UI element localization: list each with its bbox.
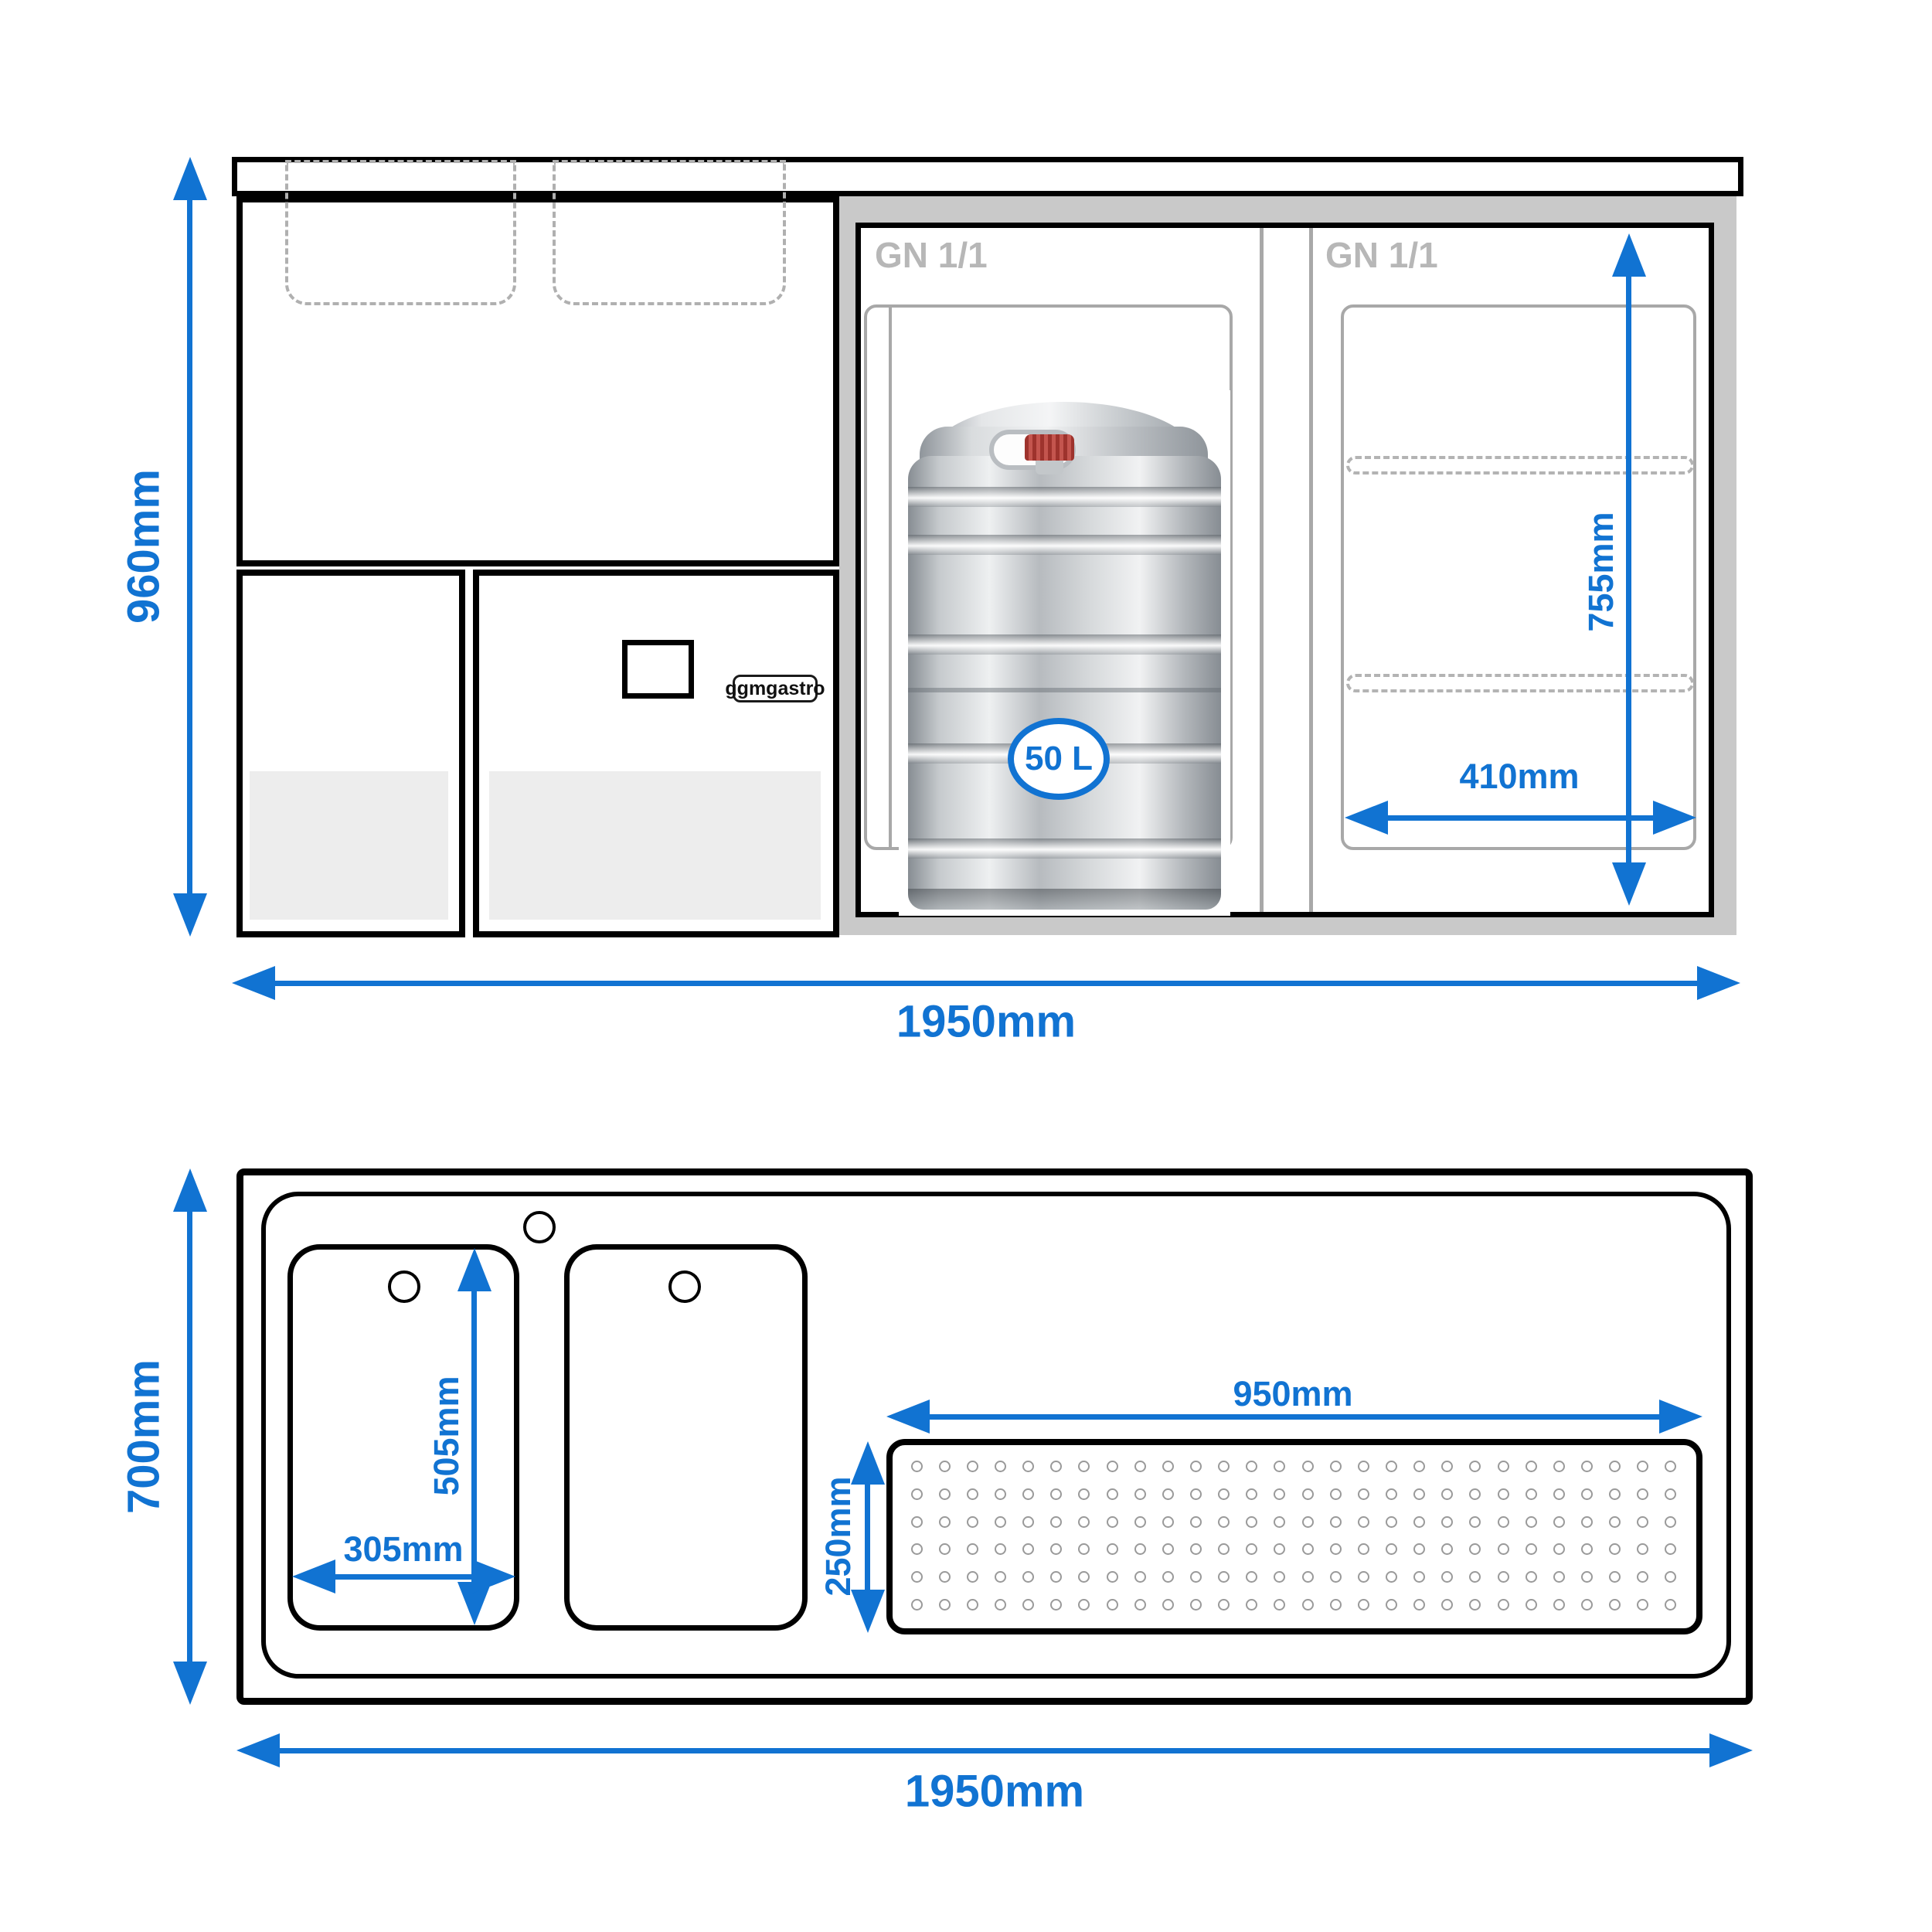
drainer-hole xyxy=(1665,1599,1676,1611)
drainer-hole xyxy=(1050,1461,1062,1472)
keg-rib xyxy=(908,487,1221,507)
drainer-hole xyxy=(939,1571,951,1583)
drainer-hole xyxy=(1665,1543,1676,1555)
drainer-hole xyxy=(1302,1516,1314,1528)
hidden-sink-outline-right xyxy=(553,160,786,305)
drainer-hole xyxy=(1386,1461,1397,1472)
drainer-hole xyxy=(995,1599,1006,1611)
drainer-hole xyxy=(1107,1516,1118,1528)
drainer-hole xyxy=(995,1461,1006,1472)
drainer-hole xyxy=(1581,1488,1593,1500)
drainer-hole xyxy=(1274,1571,1285,1583)
dim-700-label: 700mm xyxy=(118,1359,170,1514)
drainer-hole xyxy=(911,1599,923,1611)
drainer-hole xyxy=(1413,1516,1425,1528)
drainer-hole xyxy=(1386,1599,1397,1611)
drainer-hole xyxy=(1358,1543,1369,1555)
dim-250-label: 250mm xyxy=(818,1476,859,1596)
arrow-left-icon xyxy=(886,1400,930,1434)
dim-505-line xyxy=(471,1277,477,1596)
drainer-hole xyxy=(1218,1488,1230,1500)
dim-950-label: 950mm xyxy=(1233,1374,1352,1414)
drainer-hole xyxy=(1469,1543,1481,1555)
drainer-hole xyxy=(1609,1488,1621,1500)
drainer-hole xyxy=(1526,1599,1537,1611)
keg-rib xyxy=(908,535,1221,555)
drainer-hole xyxy=(1274,1543,1285,1555)
drainer-hole xyxy=(1553,1488,1565,1500)
drainer-hole xyxy=(1162,1461,1174,1472)
arrow-up-icon xyxy=(173,157,207,200)
arrow-left-icon xyxy=(232,966,275,1000)
drainer-hole xyxy=(1441,1599,1453,1611)
drainer-hole xyxy=(1274,1461,1285,1472)
tap-hole xyxy=(523,1211,556,1243)
cabinet-door-right-panel xyxy=(489,771,821,920)
drainer-hole xyxy=(1218,1461,1230,1472)
drainer-hole xyxy=(1078,1599,1090,1611)
drainer-hole xyxy=(1050,1516,1062,1528)
drainer-hole xyxy=(1498,1488,1509,1500)
brand-badge: ggmgastro xyxy=(733,675,818,702)
drainer-hole xyxy=(1469,1516,1481,1528)
gn-label-left: GN 1/1 xyxy=(875,234,988,276)
drainer-hole xyxy=(1050,1488,1062,1500)
drainer-hole xyxy=(967,1543,978,1555)
drainer-hole xyxy=(1553,1599,1565,1611)
drainer-hole xyxy=(1553,1516,1565,1528)
drainer-hole xyxy=(1218,1599,1230,1611)
drainer-hole xyxy=(1609,1516,1621,1528)
drainer-hole xyxy=(1078,1516,1090,1528)
dim-1950-front-label: 1950mm xyxy=(896,996,1076,1048)
drainer-hole xyxy=(1190,1543,1202,1555)
drainer-hole xyxy=(1107,1488,1118,1500)
drainer-hole xyxy=(1274,1516,1285,1528)
dim-250-line xyxy=(865,1471,870,1604)
arrow-right-icon xyxy=(1697,966,1740,1000)
drainer-hole xyxy=(1498,1516,1509,1528)
drainer-hole xyxy=(1302,1461,1314,1472)
drainer-hole xyxy=(1190,1516,1202,1528)
keg-body xyxy=(908,456,1221,910)
drainer-hole xyxy=(1441,1571,1453,1583)
dim-505-label: 505mm xyxy=(427,1376,467,1495)
drainer-hole xyxy=(1162,1516,1174,1528)
drainer-hole xyxy=(1022,1571,1034,1583)
drainer-hole xyxy=(1330,1516,1342,1528)
drainer-hole xyxy=(967,1571,978,1583)
drainer-hole xyxy=(1358,1599,1369,1611)
drainer-hole xyxy=(1553,1461,1565,1472)
drainer-hole xyxy=(995,1543,1006,1555)
drainer-hole xyxy=(1246,1599,1257,1611)
drainer-hole xyxy=(1134,1461,1146,1472)
drainer-hole xyxy=(1581,1599,1593,1611)
drainer-hole xyxy=(1107,1571,1118,1583)
drainer-hole xyxy=(1107,1461,1118,1472)
drainer-hole xyxy=(1190,1461,1202,1472)
dim-1950-plan-line xyxy=(267,1748,1722,1753)
arrow-right-icon xyxy=(1659,1400,1702,1434)
door-vent-square xyxy=(622,640,694,699)
drainer-hole xyxy=(1302,1488,1314,1500)
drainer-hole xyxy=(1637,1516,1648,1528)
dim-755-line xyxy=(1626,263,1631,873)
keg-capacity-badge: 50 L xyxy=(1008,718,1110,800)
shelf-dashed-upper xyxy=(1346,456,1694,474)
drainer-hole xyxy=(1190,1599,1202,1611)
drainer-hole xyxy=(1553,1543,1565,1555)
drainer-hole xyxy=(1078,1488,1090,1500)
fridge-door-divider-line-1 xyxy=(1260,228,1264,912)
drainer-hole xyxy=(1022,1599,1034,1611)
drainer-hole xyxy=(1190,1488,1202,1500)
drainer-hole xyxy=(911,1488,923,1500)
drainer-hole xyxy=(939,1488,951,1500)
drainer-hole xyxy=(1330,1543,1342,1555)
drainer-hole xyxy=(1441,1543,1453,1555)
keg-seam-line xyxy=(908,688,1221,692)
keg-rib xyxy=(908,634,1221,655)
drainer-hole xyxy=(1413,1571,1425,1583)
arrow-up-icon xyxy=(1612,233,1646,277)
drainer-hole xyxy=(1274,1599,1285,1611)
drainer-hole xyxy=(1358,1571,1369,1583)
arrow-down-icon xyxy=(1612,862,1646,906)
drainer-hole xyxy=(1246,1461,1257,1472)
shelf-dashed-lower xyxy=(1346,674,1694,692)
drainer-hole xyxy=(1302,1599,1314,1611)
drainer-hole xyxy=(1441,1461,1453,1472)
arrow-right-icon xyxy=(1709,1733,1753,1767)
drainer-hole xyxy=(1498,1461,1509,1472)
drainer-hole xyxy=(967,1516,978,1528)
keg-bottom-chime xyxy=(908,889,1221,910)
drainer-hole xyxy=(1609,1571,1621,1583)
drainer-hole xyxy=(1022,1461,1034,1472)
drainer-hole xyxy=(1358,1516,1369,1528)
drainer-hole xyxy=(1078,1543,1090,1555)
drainer-hole xyxy=(939,1461,951,1472)
drainer-hole xyxy=(1246,1543,1257,1555)
drainer-hole xyxy=(967,1599,978,1611)
drainer-hole xyxy=(1162,1571,1174,1583)
drainer-hole xyxy=(1637,1571,1648,1583)
drainer-hole xyxy=(1386,1516,1397,1528)
arrow-down-icon xyxy=(173,1662,207,1705)
keg-rib xyxy=(908,838,1221,859)
drainer-hole xyxy=(1637,1461,1648,1472)
keg-cap-stub xyxy=(1036,461,1063,474)
drainer-hole xyxy=(1498,1599,1509,1611)
drainer-hole xyxy=(1553,1571,1565,1583)
drainer-hole xyxy=(1441,1488,1453,1500)
drainer-hole xyxy=(1498,1543,1509,1555)
drainer-perforations xyxy=(903,1453,1685,1618)
drainer-hole xyxy=(1078,1571,1090,1583)
drainer-hole xyxy=(1413,1461,1425,1472)
brand-label: ggmgastro xyxy=(725,678,825,700)
drainer-hole xyxy=(1526,1571,1537,1583)
drainer-hole xyxy=(1413,1488,1425,1500)
drainer-hole xyxy=(995,1488,1006,1500)
gn-label-right: GN 1/1 xyxy=(1325,234,1438,276)
arrow-left-icon xyxy=(236,1733,280,1767)
drainer-hole xyxy=(1665,1516,1676,1528)
drainer-hole xyxy=(1469,1599,1481,1611)
drainer-hole xyxy=(1134,1543,1146,1555)
drainer-hole xyxy=(1022,1516,1034,1528)
drainer-hole xyxy=(911,1571,923,1583)
drainer-hole xyxy=(1330,1571,1342,1583)
drainer-hole xyxy=(1413,1543,1425,1555)
drainer-hole xyxy=(1386,1571,1397,1583)
drainer-hole xyxy=(1665,1571,1676,1583)
drainer-hole xyxy=(1330,1488,1342,1500)
dim-700-line xyxy=(187,1201,192,1675)
drainer-hole xyxy=(1078,1461,1090,1472)
drainer-hole xyxy=(995,1571,1006,1583)
dim-960-line xyxy=(187,189,192,908)
drainer-hole xyxy=(1134,1488,1146,1500)
drainer-hole xyxy=(1526,1461,1537,1472)
drainer-hole xyxy=(1469,1461,1481,1472)
drainer-hole xyxy=(1637,1599,1648,1611)
drainer-hole xyxy=(1581,1571,1593,1583)
drainer-hole xyxy=(1162,1543,1174,1555)
drainer-hole xyxy=(1609,1461,1621,1472)
drainer-hole xyxy=(1050,1571,1062,1583)
drainer-hole xyxy=(1469,1571,1481,1583)
drainer-hole xyxy=(1413,1599,1425,1611)
technical-drawing-page: ggmgastro GN 1/1 GN 1/1 xyxy=(0,0,1932,1932)
drainer-hole xyxy=(1302,1543,1314,1555)
dim-950-line xyxy=(916,1414,1673,1420)
drainer-hole xyxy=(1665,1461,1676,1472)
dim-410-line xyxy=(1376,815,1663,821)
drainer-hole xyxy=(1637,1543,1648,1555)
arrow-down-icon xyxy=(173,893,207,937)
dim-1950-plan-label: 1950mm xyxy=(905,1766,1084,1818)
keg-cap xyxy=(1025,434,1074,461)
drainer-hole xyxy=(1050,1543,1062,1555)
drainer-hole xyxy=(1330,1599,1342,1611)
drainer-hole xyxy=(1581,1516,1593,1528)
drainer-hole xyxy=(1246,1516,1257,1528)
drainer-hole xyxy=(1218,1516,1230,1528)
drainer-hole xyxy=(1218,1571,1230,1583)
dim-1950-front-line xyxy=(263,981,1713,986)
arrow-right-icon xyxy=(1653,801,1696,835)
arrow-left-icon xyxy=(1345,801,1388,835)
drainer-hole xyxy=(939,1516,951,1528)
drainer-hole xyxy=(1190,1571,1202,1583)
drainer-hole xyxy=(1665,1488,1676,1500)
drainer-hole xyxy=(1609,1543,1621,1555)
dim-410-label: 410mm xyxy=(1459,757,1579,797)
hidden-sink-outline-left xyxy=(285,160,516,305)
dim-960-label: 960mm xyxy=(118,469,170,624)
drainer-hole xyxy=(1581,1461,1593,1472)
drainer-hole xyxy=(1274,1488,1285,1500)
overflow-hole-right xyxy=(668,1270,701,1303)
drainer-hole xyxy=(1162,1488,1174,1500)
dim-305-line xyxy=(321,1574,486,1580)
drainer-hole xyxy=(1134,1599,1146,1611)
drainer-hole xyxy=(1162,1599,1174,1611)
drainer-hole xyxy=(939,1599,951,1611)
drainer-hole xyxy=(1526,1488,1537,1500)
drainer-hole xyxy=(1469,1488,1481,1500)
dim-305-label: 305mm xyxy=(343,1529,463,1570)
drainer-hole xyxy=(1302,1571,1314,1583)
keg-capacity-label: 50 L xyxy=(1025,740,1093,778)
drainer-hole xyxy=(911,1461,923,1472)
fridge-door-panel-left-mullion xyxy=(889,304,892,850)
overflow-hole-left xyxy=(388,1270,420,1303)
arrow-right-icon xyxy=(472,1560,515,1594)
drainer-hole xyxy=(939,1543,951,1555)
arrow-left-icon xyxy=(292,1560,335,1594)
drainer-hole xyxy=(1441,1516,1453,1528)
drainer-hole xyxy=(1609,1599,1621,1611)
drainer-hole xyxy=(1022,1543,1034,1555)
drainer-hole xyxy=(1526,1516,1537,1528)
dim-755-label: 755mm xyxy=(1581,512,1621,631)
drainer-hole xyxy=(1637,1488,1648,1500)
drainer-hole xyxy=(1134,1516,1146,1528)
arrow-up-icon xyxy=(457,1248,492,1291)
drainer-hole xyxy=(967,1461,978,1472)
drainer-hole xyxy=(1330,1461,1342,1472)
drainer-hole xyxy=(1358,1488,1369,1500)
drainer-hole xyxy=(1107,1599,1118,1611)
drainer-hole xyxy=(911,1543,923,1555)
cabinet-door-left-panel xyxy=(250,771,448,920)
drainer-hole xyxy=(1134,1571,1146,1583)
drainer-hole xyxy=(995,1516,1006,1528)
arrow-up-icon xyxy=(173,1168,207,1212)
drainer-hole xyxy=(1246,1488,1257,1500)
drainer-hole xyxy=(1218,1543,1230,1555)
fridge-door-divider-line-2 xyxy=(1309,228,1313,912)
drainer-hole xyxy=(1581,1543,1593,1555)
drainer-hole xyxy=(967,1488,978,1500)
drainer-hole xyxy=(1358,1461,1369,1472)
drainer-hole xyxy=(1246,1571,1257,1583)
drainer-hole xyxy=(1386,1488,1397,1500)
drainer-hole xyxy=(1050,1599,1062,1611)
drainer-hole xyxy=(1022,1488,1034,1500)
drainer-hole xyxy=(1526,1543,1537,1555)
drainer-hole xyxy=(1498,1571,1509,1583)
drainer-hole xyxy=(911,1516,923,1528)
drainer-hole xyxy=(1107,1543,1118,1555)
drainer-hole xyxy=(1386,1543,1397,1555)
